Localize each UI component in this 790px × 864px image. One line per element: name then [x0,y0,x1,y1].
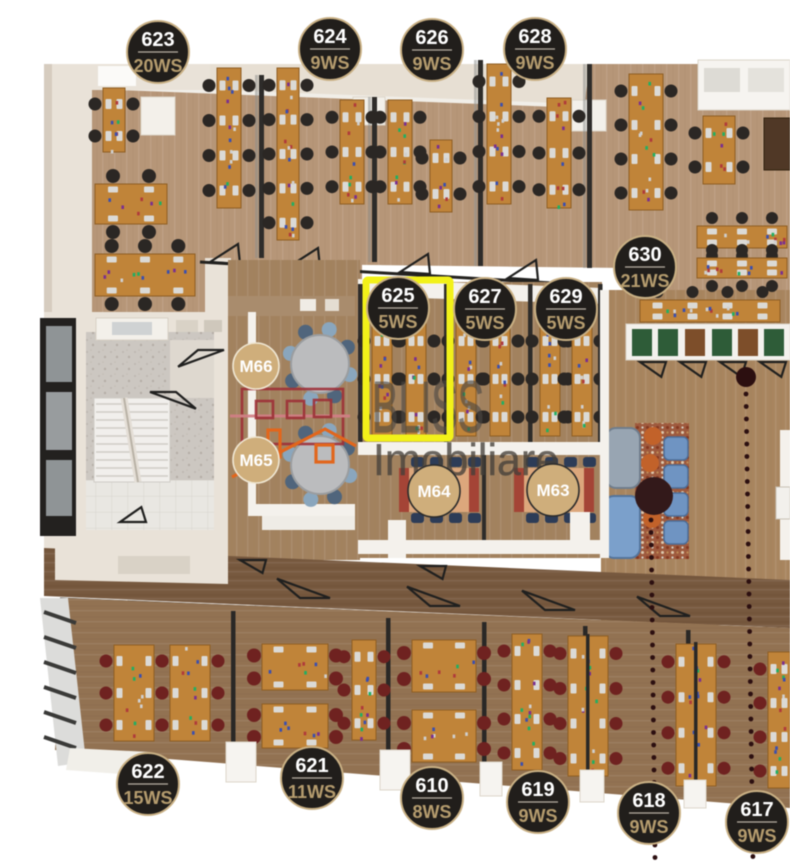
svg-text:9WS: 9WS [310,53,349,73]
svg-text:628: 628 [518,26,551,48]
svg-text:20WS: 20WS [133,56,182,76]
svg-text:11WS: 11WS [288,782,336,802]
svg-text:5WS: 5WS [465,313,504,333]
svg-text:626: 626 [415,27,448,49]
svg-text:15WS: 15WS [123,788,172,808]
svg-text:M63: M63 [536,481,569,500]
svg-text:9WS: 9WS [518,806,557,826]
svg-text:621: 621 [295,755,328,777]
svg-text:M66: M66 [239,357,272,376]
svg-text:M64: M64 [417,482,451,501]
svg-text:624: 624 [313,26,347,48]
svg-text:623: 623 [141,29,174,51]
svg-text:630: 630 [628,244,661,266]
svg-text:9WS: 9WS [515,53,554,73]
svg-text:9WS: 9WS [737,826,776,846]
svg-text:8WS: 8WS [412,802,451,822]
svg-text:617: 617 [740,799,773,821]
svg-text:610: 610 [415,775,448,797]
svg-text:9WS: 9WS [629,817,668,837]
svg-text:5WS: 5WS [546,313,585,333]
svg-text:5WS: 5WS [378,312,417,332]
svg-text:M65: M65 [239,451,272,470]
svg-text:622: 622 [131,761,164,783]
svg-text:629: 629 [549,286,582,308]
svg-text:21WS: 21WS [620,271,669,291]
svg-text:9WS: 9WS [412,54,451,74]
svg-text:618: 618 [632,790,665,812]
svg-text:619: 619 [521,779,554,801]
svg-text:627: 627 [468,286,501,308]
svg-text:625: 625 [381,285,414,307]
